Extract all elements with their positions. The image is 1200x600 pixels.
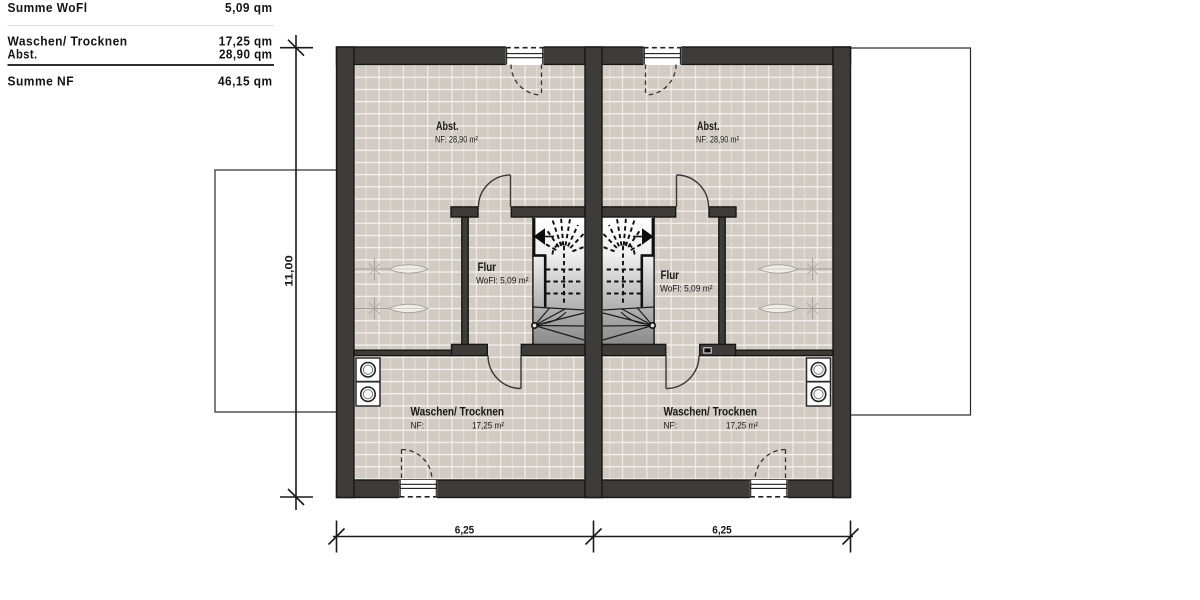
svg-text:Flur: Flur xyxy=(478,260,497,274)
svg-text:6,25: 6,25 xyxy=(712,525,732,537)
svg-text:WoFl: 5,09 m²: WoFl: 5,09 m² xyxy=(660,284,713,295)
svg-text:46,15 qm: 46,15 qm xyxy=(218,74,273,89)
svg-text:5,09 qm: 5,09 qm xyxy=(225,0,273,15)
svg-text:17,25 m²: 17,25 m² xyxy=(726,421,758,432)
svg-text:28,90 qm: 28,90 qm xyxy=(219,47,273,62)
svg-text:NF:: NF: xyxy=(664,421,678,432)
svg-text:Abst.: Abst. xyxy=(8,47,38,62)
svg-text:Waschen/ Trocknen: Waschen/ Trocknen xyxy=(411,407,505,419)
svg-text:NF:: NF: xyxy=(411,421,425,432)
svg-text:Abst.: Abst. xyxy=(436,119,459,133)
svg-text:WoFl: 5,09 m²: WoFl: 5,09 m² xyxy=(476,276,529,287)
svg-text:Waschen/ Trocknen: Waschen/ Trocknen xyxy=(664,407,758,419)
svg-text:NF: 28,90 m²: NF: 28,90 m² xyxy=(435,135,478,146)
svg-text:Summe NF: Summe NF xyxy=(8,74,75,89)
svg-text:6,25: 6,25 xyxy=(455,525,475,537)
svg-text:Summe WoFl: Summe WoFl xyxy=(8,0,88,15)
svg-text:Flur: Flur xyxy=(661,268,680,282)
svg-text:11,00: 11,00 xyxy=(284,255,296,287)
svg-text:Abst.: Abst. xyxy=(697,119,720,133)
svg-text:17,25 m²: 17,25 m² xyxy=(472,421,504,432)
svg-text:NF: 28,90 m²: NF: 28,90 m² xyxy=(696,135,739,146)
